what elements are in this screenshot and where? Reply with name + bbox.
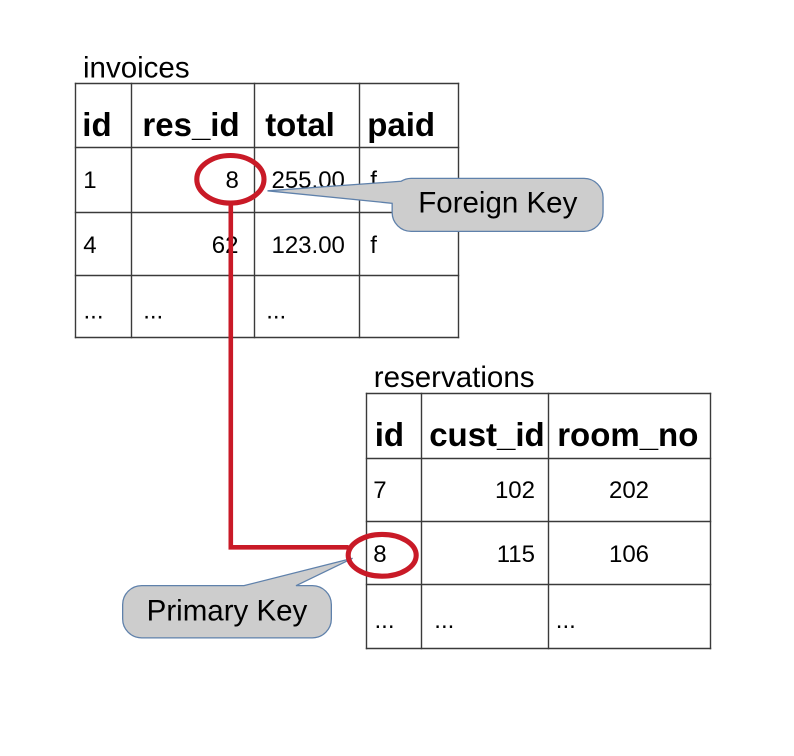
svg-text:total: total	[265, 106, 335, 143]
svg-text:room_no: room_no	[557, 416, 698, 453]
svg-text:Primary Key: Primary Key	[147, 594, 308, 627]
svg-text:202: 202	[609, 477, 649, 504]
svg-text:cust_id: cust_id	[429, 416, 545, 453]
svg-text:4: 4	[83, 232, 96, 259]
svg-text:8: 8	[225, 167, 238, 194]
svg-text:...: ...	[556, 607, 576, 634]
svg-text:...: ...	[434, 607, 454, 634]
svg-text:Foreign Key: Foreign Key	[418, 186, 577, 219]
svg-text:62: 62	[212, 232, 239, 259]
svg-text:res_id: res_id	[142, 106, 239, 143]
svg-text:...: ...	[143, 297, 163, 324]
svg-text:paid: paid	[367, 106, 435, 143]
svg-text:...: ...	[375, 607, 395, 634]
svg-text:123.00: 123.00	[271, 232, 344, 259]
svg-text:invoices: invoices	[83, 52, 190, 85]
svg-text:id: id	[375, 416, 404, 453]
svg-text:f: f	[370, 232, 377, 259]
svg-text:8: 8	[373, 541, 386, 568]
svg-text:reservations: reservations	[374, 361, 535, 394]
svg-text:1: 1	[83, 167, 96, 194]
svg-text:102: 102	[495, 477, 535, 504]
svg-text:115: 115	[497, 541, 535, 568]
svg-text:...: ...	[266, 297, 286, 324]
svg-text:106: 106	[609, 541, 649, 568]
svg-text:id: id	[82, 106, 111, 143]
svg-text:7: 7	[373, 477, 386, 504]
svg-text:...: ...	[84, 297, 104, 324]
